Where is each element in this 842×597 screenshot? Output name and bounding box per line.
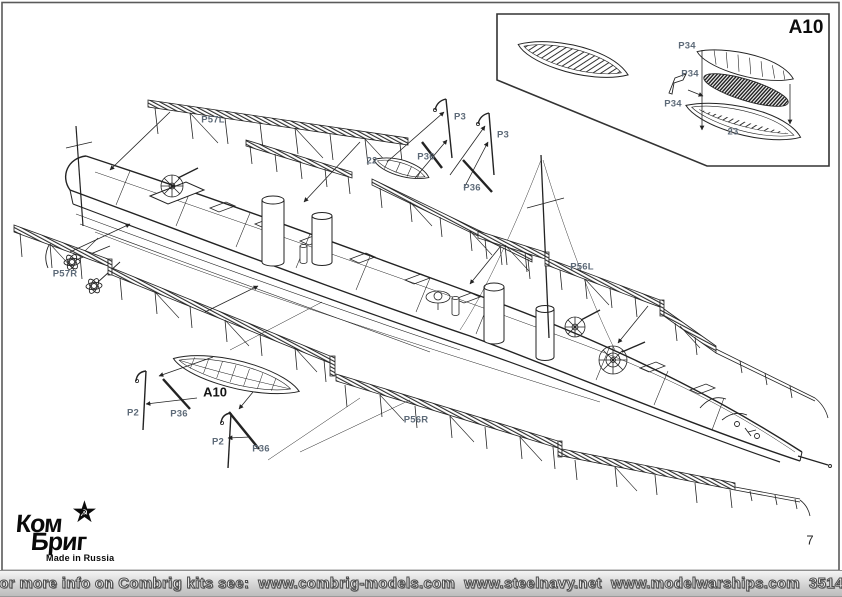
footer-link-combrig: www.combrig-models.com: [258, 575, 455, 592]
inset-title: A10: [789, 17, 824, 39]
davits-p3: [433, 99, 494, 175]
instruction-diagram: [0, 0, 842, 595]
davits-p2: [135, 371, 231, 468]
inset-a10: [497, 14, 829, 166]
instruction-page: { "page_number": "7", "inset": { "title"…: [0, 0, 842, 595]
railing-p56r: [336, 374, 810, 516]
ship-line-art: [46, 126, 832, 468]
inset-border: [497, 14, 829, 166]
railing-p57l: [148, 100, 408, 170]
footer-link-steelnavy: www.steelnavy.net: [464, 575, 602, 592]
footer-kit-number: 35142: [809, 575, 842, 592]
footer-bar: For more info on Combrig kits see: www.c…: [0, 570, 842, 597]
footer-text: For more info on Combrig kits see:: [0, 575, 249, 592]
footer-link-modelwarships: www.modelwarships.com: [611, 575, 800, 592]
braces-p36-top: [422, 142, 492, 192]
boat-a10: [170, 343, 303, 406]
searchlight: [426, 291, 450, 310]
combrig-logo: ★☭ Ком Бриг Made in Russia: [16, 514, 126, 566]
page-number: 7: [806, 533, 813, 548]
logo-text-brig: Бриг: [30, 532, 127, 552]
